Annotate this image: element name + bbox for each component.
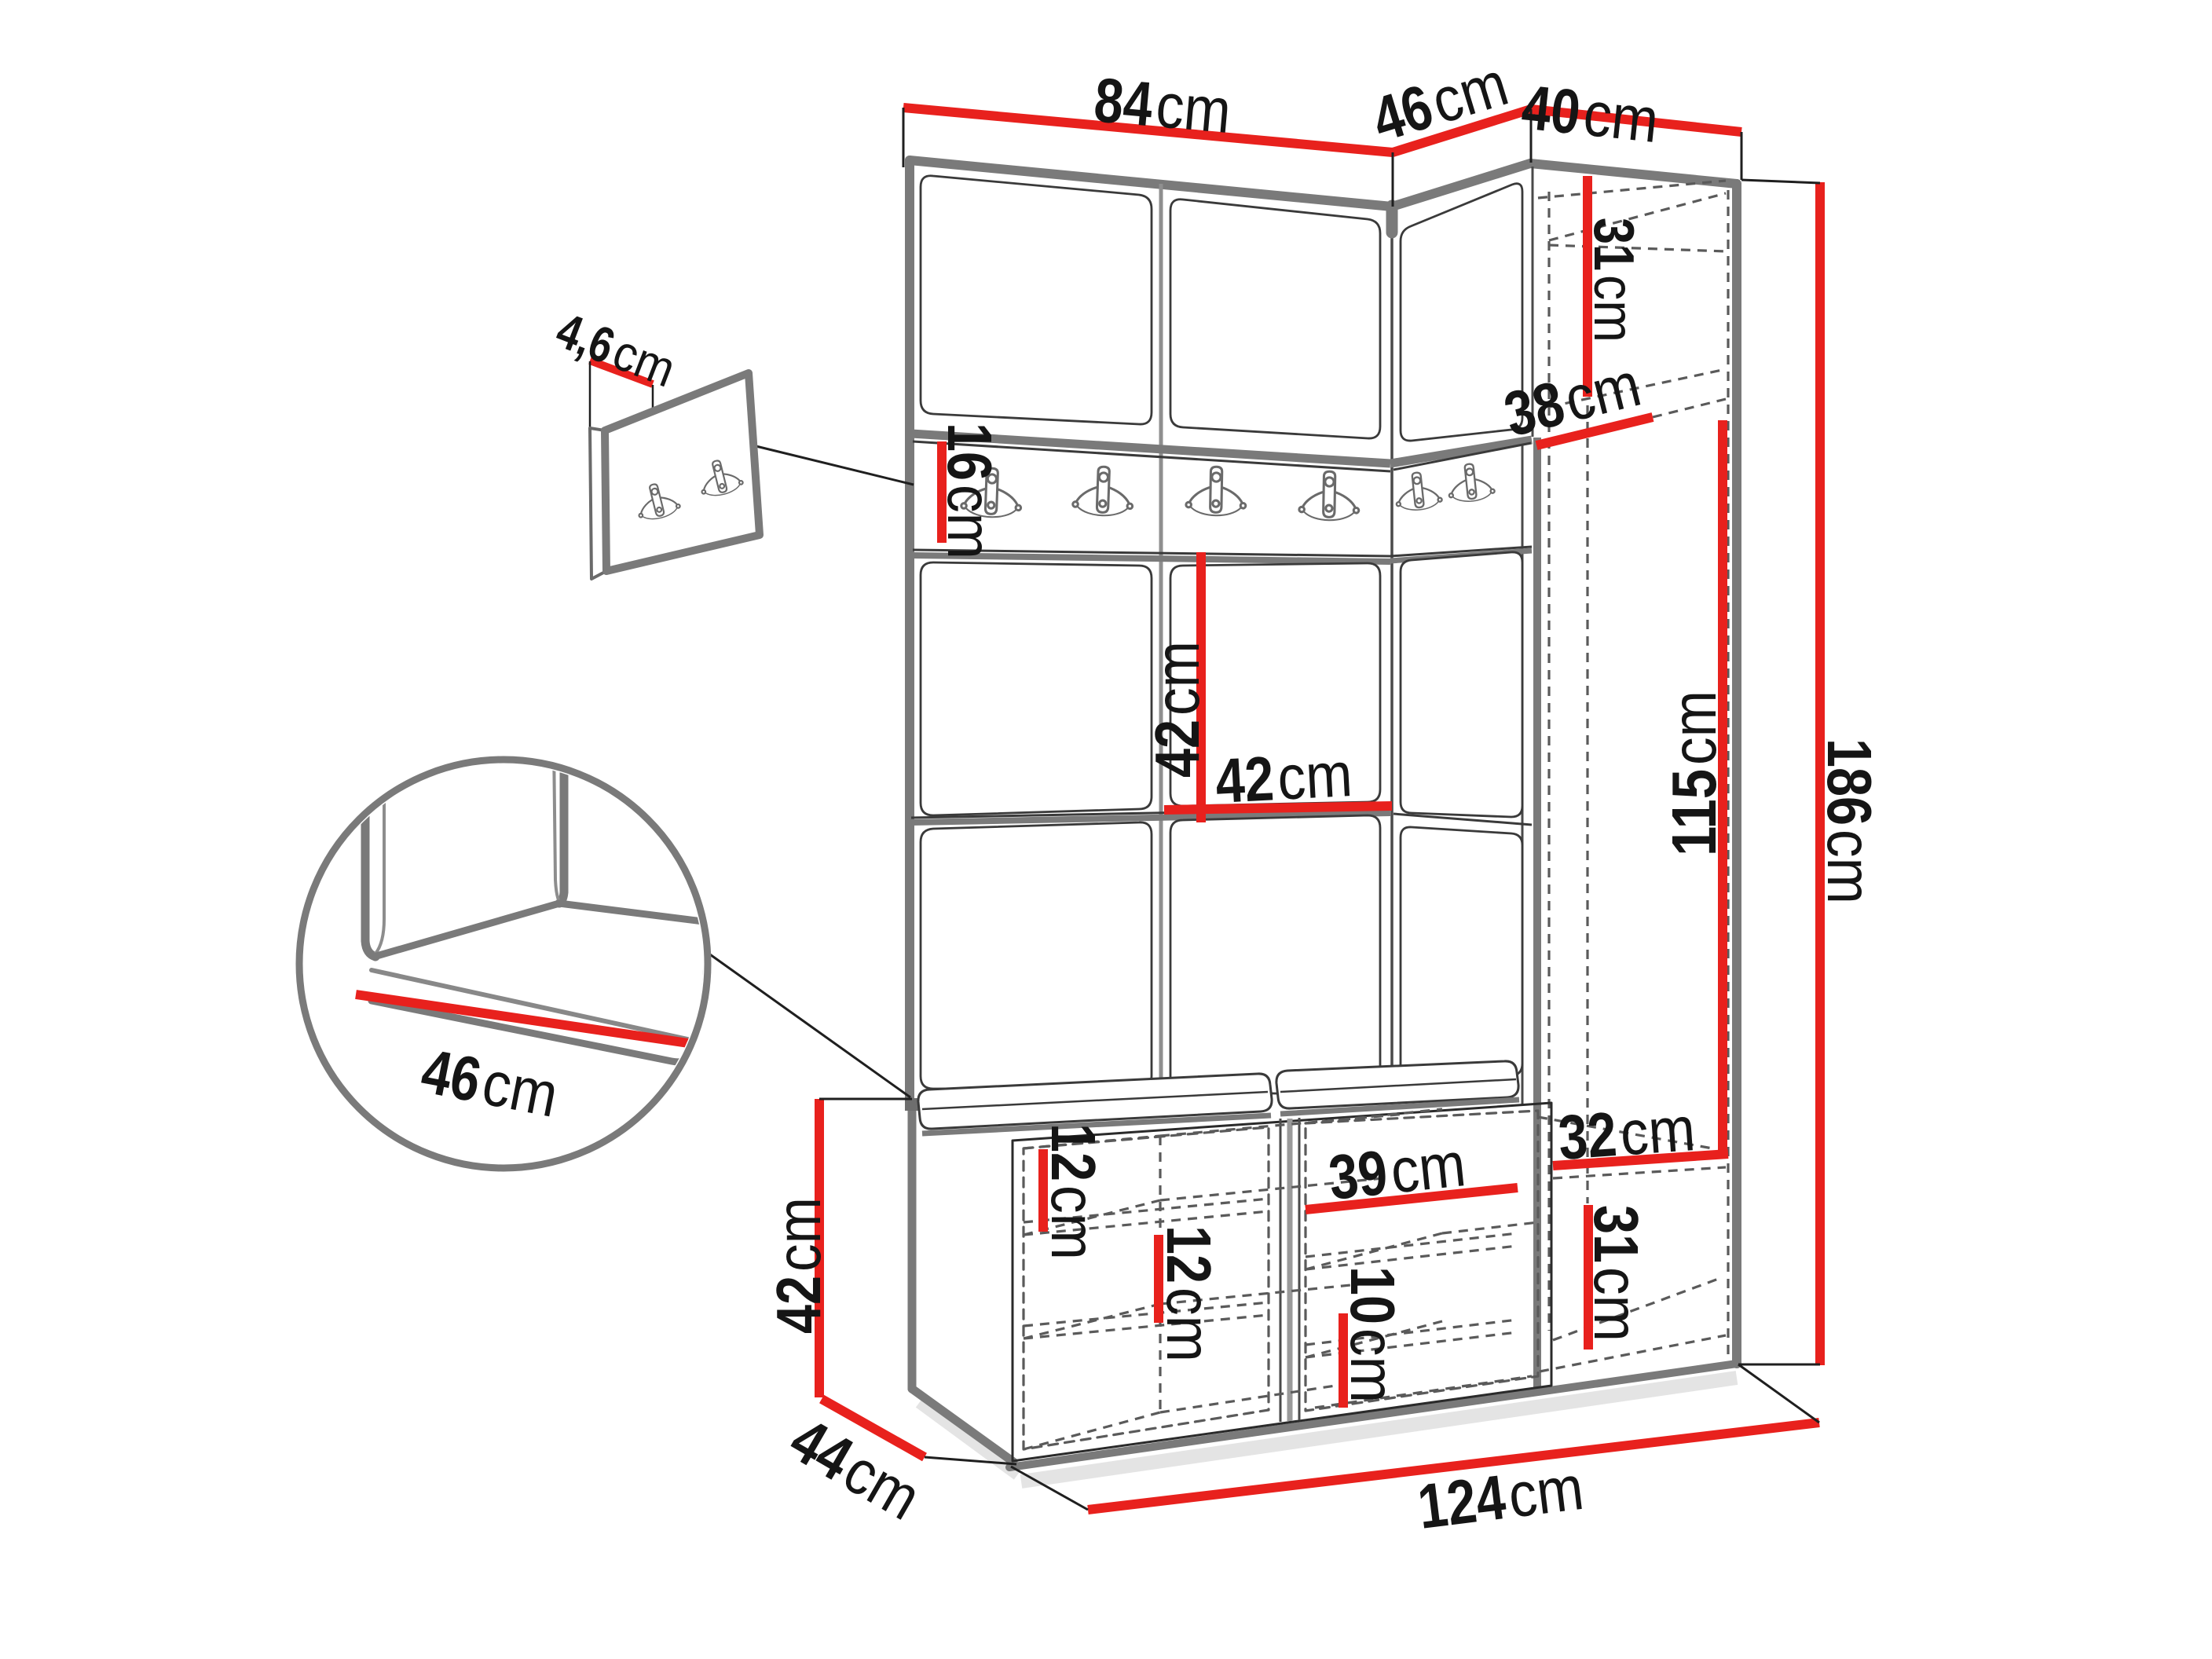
svg-text:16cm: 16cm [935,423,1005,559]
svg-text:84cm: 84cm [1092,64,1234,146]
svg-text:12cm: 12cm [1038,1123,1108,1260]
svg-text:186cm: 186cm [1815,738,1884,904]
svg-text:31cm: 31cm [1581,1205,1651,1342]
svg-text:10cm: 10cm [1338,1266,1408,1403]
svg-text:31cm: 31cm [1582,218,1645,342]
svg-text:40cm: 40cm [1518,71,1661,156]
svg-text:39cm: 39cm [1325,1129,1468,1213]
svg-text:12cm: 12cm [1154,1225,1224,1362]
svg-text:42cm: 42cm [764,1197,833,1334]
svg-text:32cm: 32cm [1556,1093,1697,1173]
svg-text:42cm: 42cm [1214,739,1353,816]
svg-text:115cm: 115cm [1659,690,1729,856]
svg-text:42cm: 42cm [1142,641,1212,778]
